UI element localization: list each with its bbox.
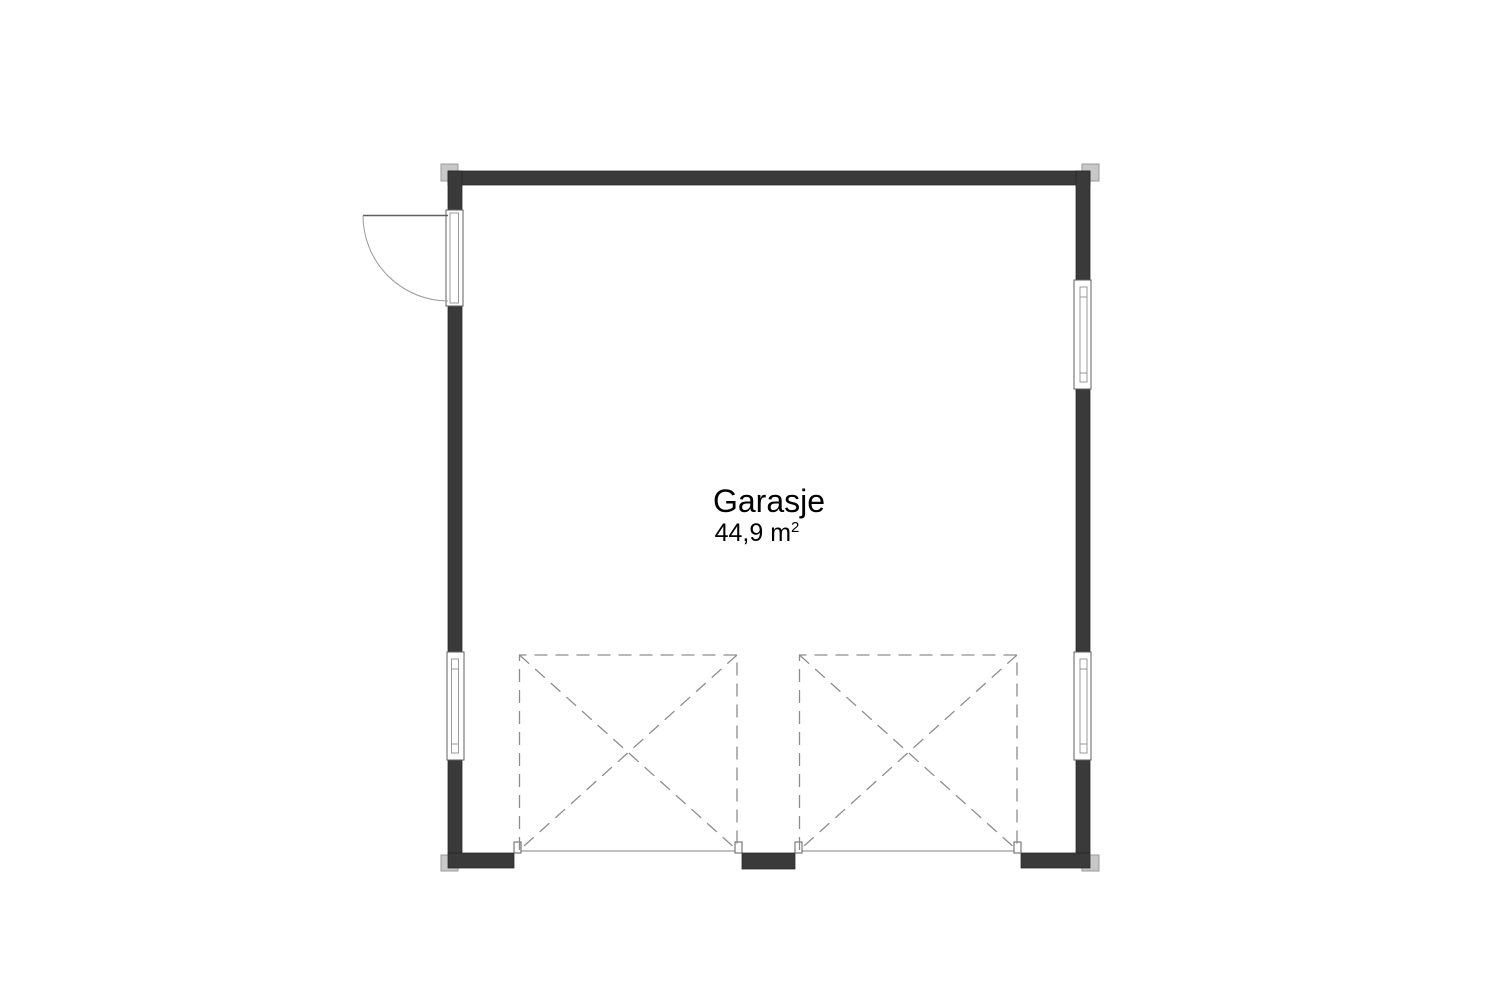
room-area-value: 44,9 m <box>715 519 791 547</box>
window-right-lower <box>1074 652 1091 760</box>
room-area-label: 44,9 m2 <box>715 519 800 547</box>
window-glass <box>1080 287 1087 382</box>
wall-right-upper <box>1076 171 1090 280</box>
wall-left-above-door <box>448 171 462 210</box>
garage-door-left <box>514 655 742 853</box>
garage-door-jamb-left <box>795 842 802 853</box>
floor-plan: Garasje 44,9 m2 <box>0 0 1500 999</box>
wall-bottom-center-pier <box>742 853 795 869</box>
wall-right-lower <box>1076 760 1090 853</box>
door-frame <box>450 213 459 303</box>
garage-door-swing-cross-icon <box>800 655 1018 850</box>
floor-plan-canvas: Garasje 44,9 m2 <box>0 0 1500 999</box>
room-label: Garasje 44,9 m2 <box>713 483 825 547</box>
wall-right-middle <box>1076 389 1090 652</box>
wall-bottom-left-segment <box>448 853 514 868</box>
room-area-exponent: 2 <box>791 519 799 536</box>
entry-door <box>363 210 463 306</box>
wall-left-lower <box>448 760 462 853</box>
garage-door-right <box>795 655 1021 853</box>
window-left-lower <box>447 652 464 760</box>
room-name-label: Garasje <box>713 483 825 519</box>
wall-bottom-right-segment <box>1021 853 1090 868</box>
window-glass <box>1080 659 1087 753</box>
garage-door-jamb-right <box>735 842 742 853</box>
garage-door-jamb-right <box>1014 842 1021 853</box>
garage-door-swing-cross-icon <box>520 655 738 850</box>
wall-top <box>448 171 1090 185</box>
window-glass <box>452 659 459 753</box>
window-right-upper <box>1074 280 1091 389</box>
wall-left-middle <box>448 306 462 652</box>
door-swing-arc-icon <box>363 216 448 302</box>
